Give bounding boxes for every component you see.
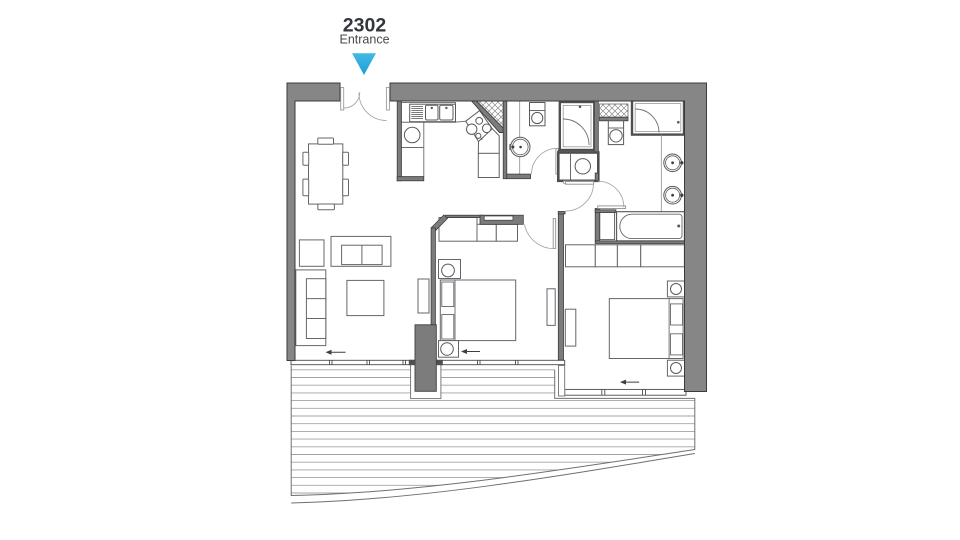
svg-text:Entrance: Entrance: [339, 33, 389, 47]
